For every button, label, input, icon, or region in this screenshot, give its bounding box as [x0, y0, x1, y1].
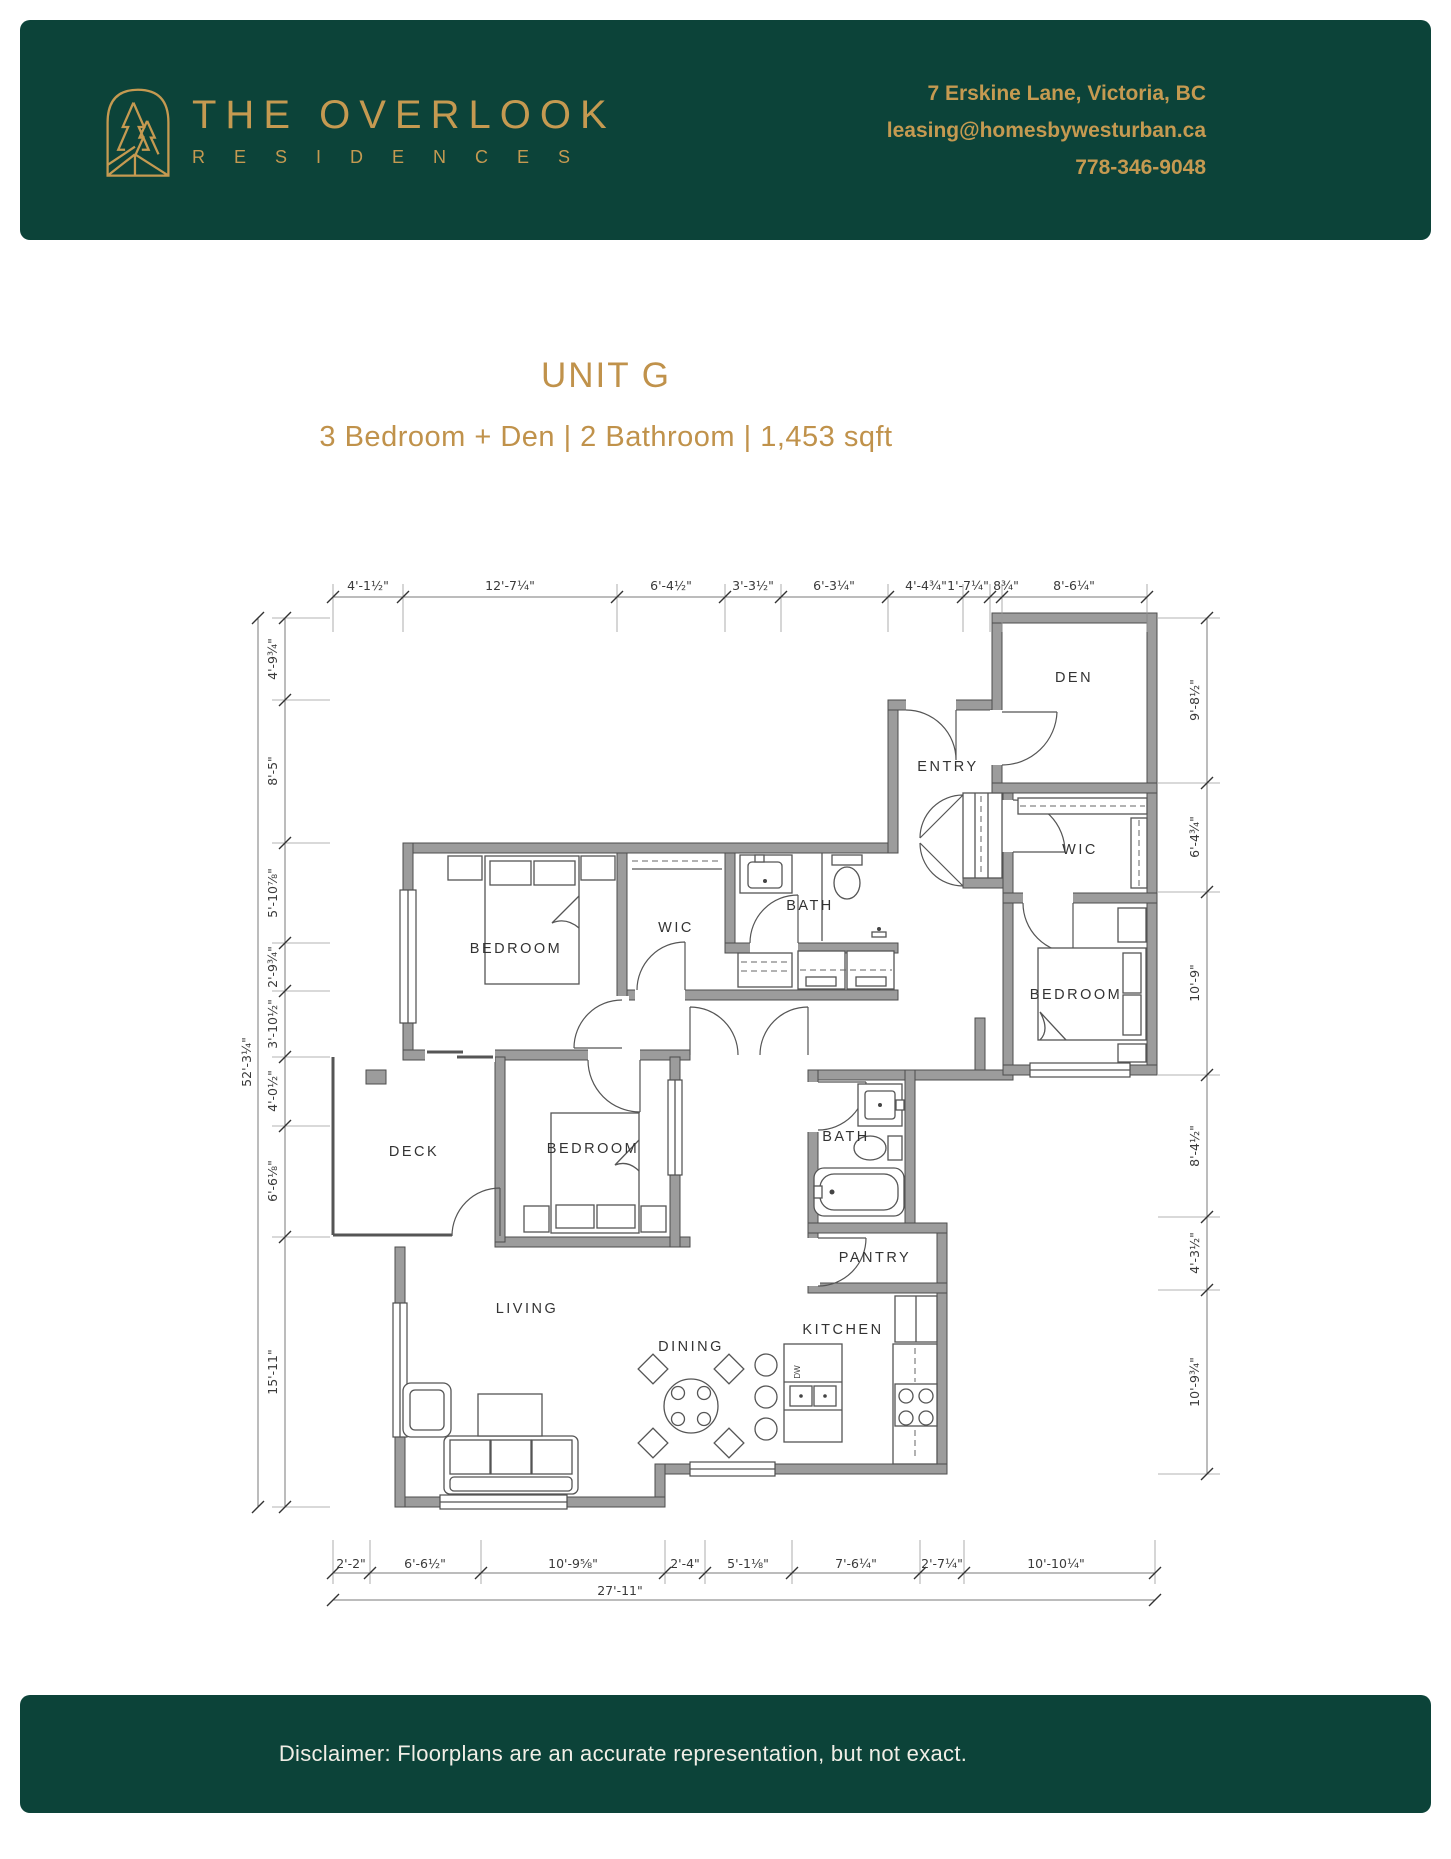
dim-bottom-2: 10'-9⅝" [548, 1556, 598, 1571]
room-label-wic-right: WIC [1062, 842, 1098, 858]
dimension-labels-top: 4'-1½" 12'-7¼" 6'-4½" 3'-3½" 6'-3¼" 4'-4… [347, 578, 1095, 593]
dimension-labels-right: 9'-8½" 6'-4¾" 10'-9" 8'-4½" 4'-3½" 10'-9… [1187, 679, 1202, 1407]
contact-phone: 778-346-9048 [887, 149, 1206, 186]
room-label-entry: ENTRY [917, 759, 978, 775]
dim-left-3: 2'-9¾" [265, 946, 280, 988]
brand-text: THE OVERLOOK R E S I D E N C E S [192, 93, 616, 168]
dim-left-5: 4'-0½" [265, 1070, 280, 1112]
header-banner: THE OVERLOOK R E S I D E N C E S 7 Erski… [20, 20, 1431, 240]
dim-right-0: 9'-8½" [1187, 679, 1202, 721]
footer-banner: Disclaimer: Floorplans are an accurate r… [20, 1695, 1431, 1813]
room-label-dining: DINING [658, 1339, 724, 1355]
dim-left-0: 4'-9¾" [265, 638, 280, 680]
dim-left-1: 8'-5" [265, 756, 280, 786]
floorplan-drawing: DW 4'-1½" 12'-7¼" 6'-4½" 3'-3½" [225, 570, 1240, 1625]
dim-left-4: 3'-10½" [265, 999, 280, 1049]
room-label-bath-lower: BATH [822, 1129, 870, 1145]
unit-title: UNIT G [0, 356, 1212, 396]
dim-left-6: 6'-6⅛" [265, 1160, 280, 1202]
room-label-living: LIVING [496, 1301, 559, 1317]
dim-top-4: 6'-3¼" [813, 578, 855, 593]
dim-bottom-5: 7'-6¼" [835, 1556, 877, 1571]
bed-right [1038, 908, 1146, 1062]
dim-right-5: 10'-9¾" [1187, 1357, 1202, 1407]
room-label-kitchen: KITCHEN [802, 1322, 883, 1338]
dim-top-1: 12'-7¼" [485, 578, 535, 593]
disclaimer-text: Disclaimer: Floorplans are an accurate r… [20, 1741, 1431, 1767]
bath-upper-fixtures [740, 853, 886, 941]
room-label-bedroom-upper: BEDROOM [470, 941, 562, 957]
laundry [738, 951, 894, 989]
dim-left-7: 15'-11" [265, 1349, 280, 1395]
flyer-page: THE OVERLOOK R E S I D E N C E S 7 Erski… [0, 0, 1451, 1859]
dim-top-6: 1'-7¼" [947, 578, 989, 593]
dim-bottom-1: 6'-6½" [404, 1556, 446, 1571]
room-label-wic-left: WIC [658, 920, 694, 936]
brand: THE OVERLOOK R E S I D E N C E S [100, 69, 616, 191]
bed-upper [448, 856, 615, 984]
dim-bottom-7: 10'-10¼" [1027, 1556, 1085, 1571]
unit-subtitle: 3 Bedroom + Den | 2 Bathroom | 1,453 sqf… [0, 421, 1212, 454]
dim-bottom-overall: 27'-11" [597, 1583, 643, 1598]
dim-top-8: 8'-6¼" [1053, 578, 1095, 593]
room-label-pantry: PANTRY [839, 1250, 911, 1266]
dim-bottom-3: 2'-4" [670, 1556, 700, 1571]
room-label-bedroom-mid: BEDROOM [547, 1141, 639, 1157]
brand-subname: R E S I D E N C E S [192, 147, 616, 168]
room-label-bedroom-right: BEDROOM [1030, 987, 1122, 1003]
dim-bottom-0: 2'-2" [336, 1556, 366, 1571]
brand-name: THE OVERLOOK [192, 93, 616, 138]
dim-top-0: 4'-1½" [347, 578, 389, 593]
title-block: UNIT G 3 Bedroom + Den | 2 Bathroom | 1,… [0, 356, 1212, 454]
dim-top-3: 3'-3½" [732, 578, 774, 593]
dim-top-2: 6'-4½" [650, 578, 692, 593]
dim-top-5: 4'-4¾" [905, 578, 947, 593]
bath-lower-fixtures [814, 1084, 904, 1216]
dim-left-overall: 52'-3¼" [239, 1037, 254, 1087]
dim-bottom-6: 2'-7¼" [921, 1556, 963, 1571]
dim-right-1: 6'-4¾" [1187, 816, 1202, 858]
dim-right-2: 10'-9" [1187, 964, 1202, 1002]
dim-bottom-4: 5'-1⅛" [727, 1556, 769, 1571]
dim-right-3: 8'-4½" [1187, 1125, 1202, 1167]
dim-top-7: 8¾" [993, 578, 1019, 593]
dw-label: DW [793, 1365, 802, 1379]
room-label-bath-upper: BATH [786, 898, 834, 914]
dining-furniture [638, 1354, 744, 1458]
living-furniture [403, 1383, 578, 1494]
arch-pines-logo-icon [100, 69, 176, 191]
contact-address: 7 Erskine Lane, Victoria, BC [887, 75, 1206, 112]
room-label-deck: DECK [389, 1144, 439, 1160]
dimension-labels-bottom: 2'-2" 6'-6½" 10'-9⅝" 2'-4" 5'-1⅛" 7'-6¼"… [336, 1556, 1085, 1598]
contact-email: leasing@homesbywesturban.ca [887, 112, 1206, 149]
contact-block: 7 Erskine Lane, Victoria, BC leasing@hom… [887, 75, 1206, 186]
dim-right-4: 4'-3½" [1187, 1232, 1202, 1274]
bed-mid [524, 1113, 666, 1233]
dimension-labels-left: 4'-9¾" 8'-5" 5'-10⅞" 2'-9¾" 3'-10½" 4'-0… [239, 638, 280, 1395]
room-label-den: DEN [1055, 670, 1093, 686]
dim-left-2: 5'-10⅞" [265, 868, 280, 918]
